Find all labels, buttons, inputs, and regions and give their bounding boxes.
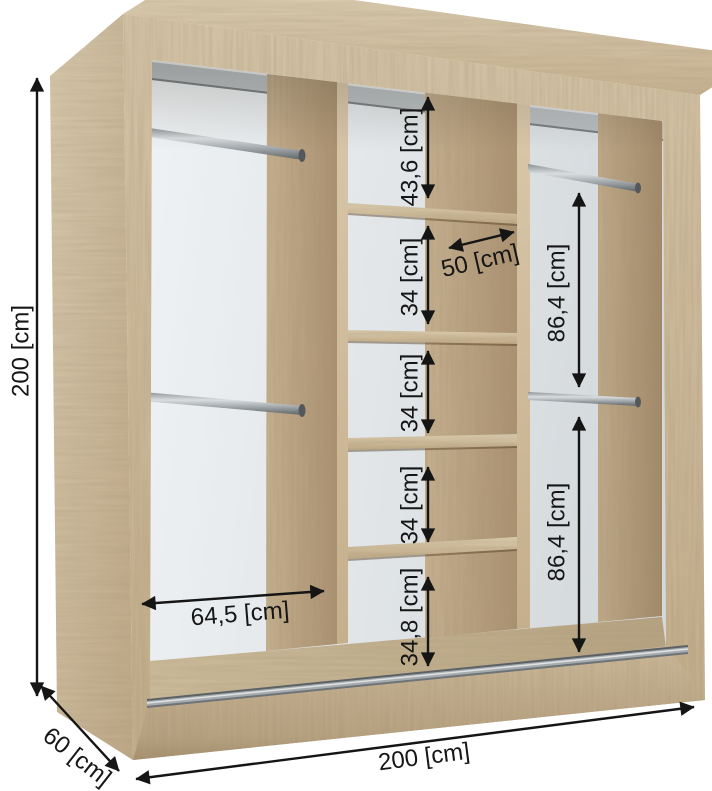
compartment-2-label: 34 [cm] [397, 238, 424, 317]
compartment-1-label: 43,6 [cm] [397, 108, 424, 207]
compartment-3-label: 34 [cm] [397, 354, 424, 433]
right-section-2-label: 86,4 [cm] [544, 483, 571, 582]
right-section-1-label: 86,4 [cm] [544, 244, 571, 343]
width-label: 200 [cm] [377, 738, 472, 777]
height-label: 200 [cm] [8, 305, 35, 397]
wardrobe-dimension-diagram: 200 [cm] 200 [cm] 60 [cm] 64,5 [cm] 50 [… [0, 0, 712, 791]
compartment-4-label: 34 [cm] [397, 466, 424, 545]
diagram-canvas: 200 [cm] 200 [cm] 60 [cm] 64,5 [cm] 50 [… [0, 0, 712, 791]
compartment-5-label: 34,8 [cm] [397, 568, 424, 667]
wardrobe-left-side-panel [50, 14, 133, 760]
